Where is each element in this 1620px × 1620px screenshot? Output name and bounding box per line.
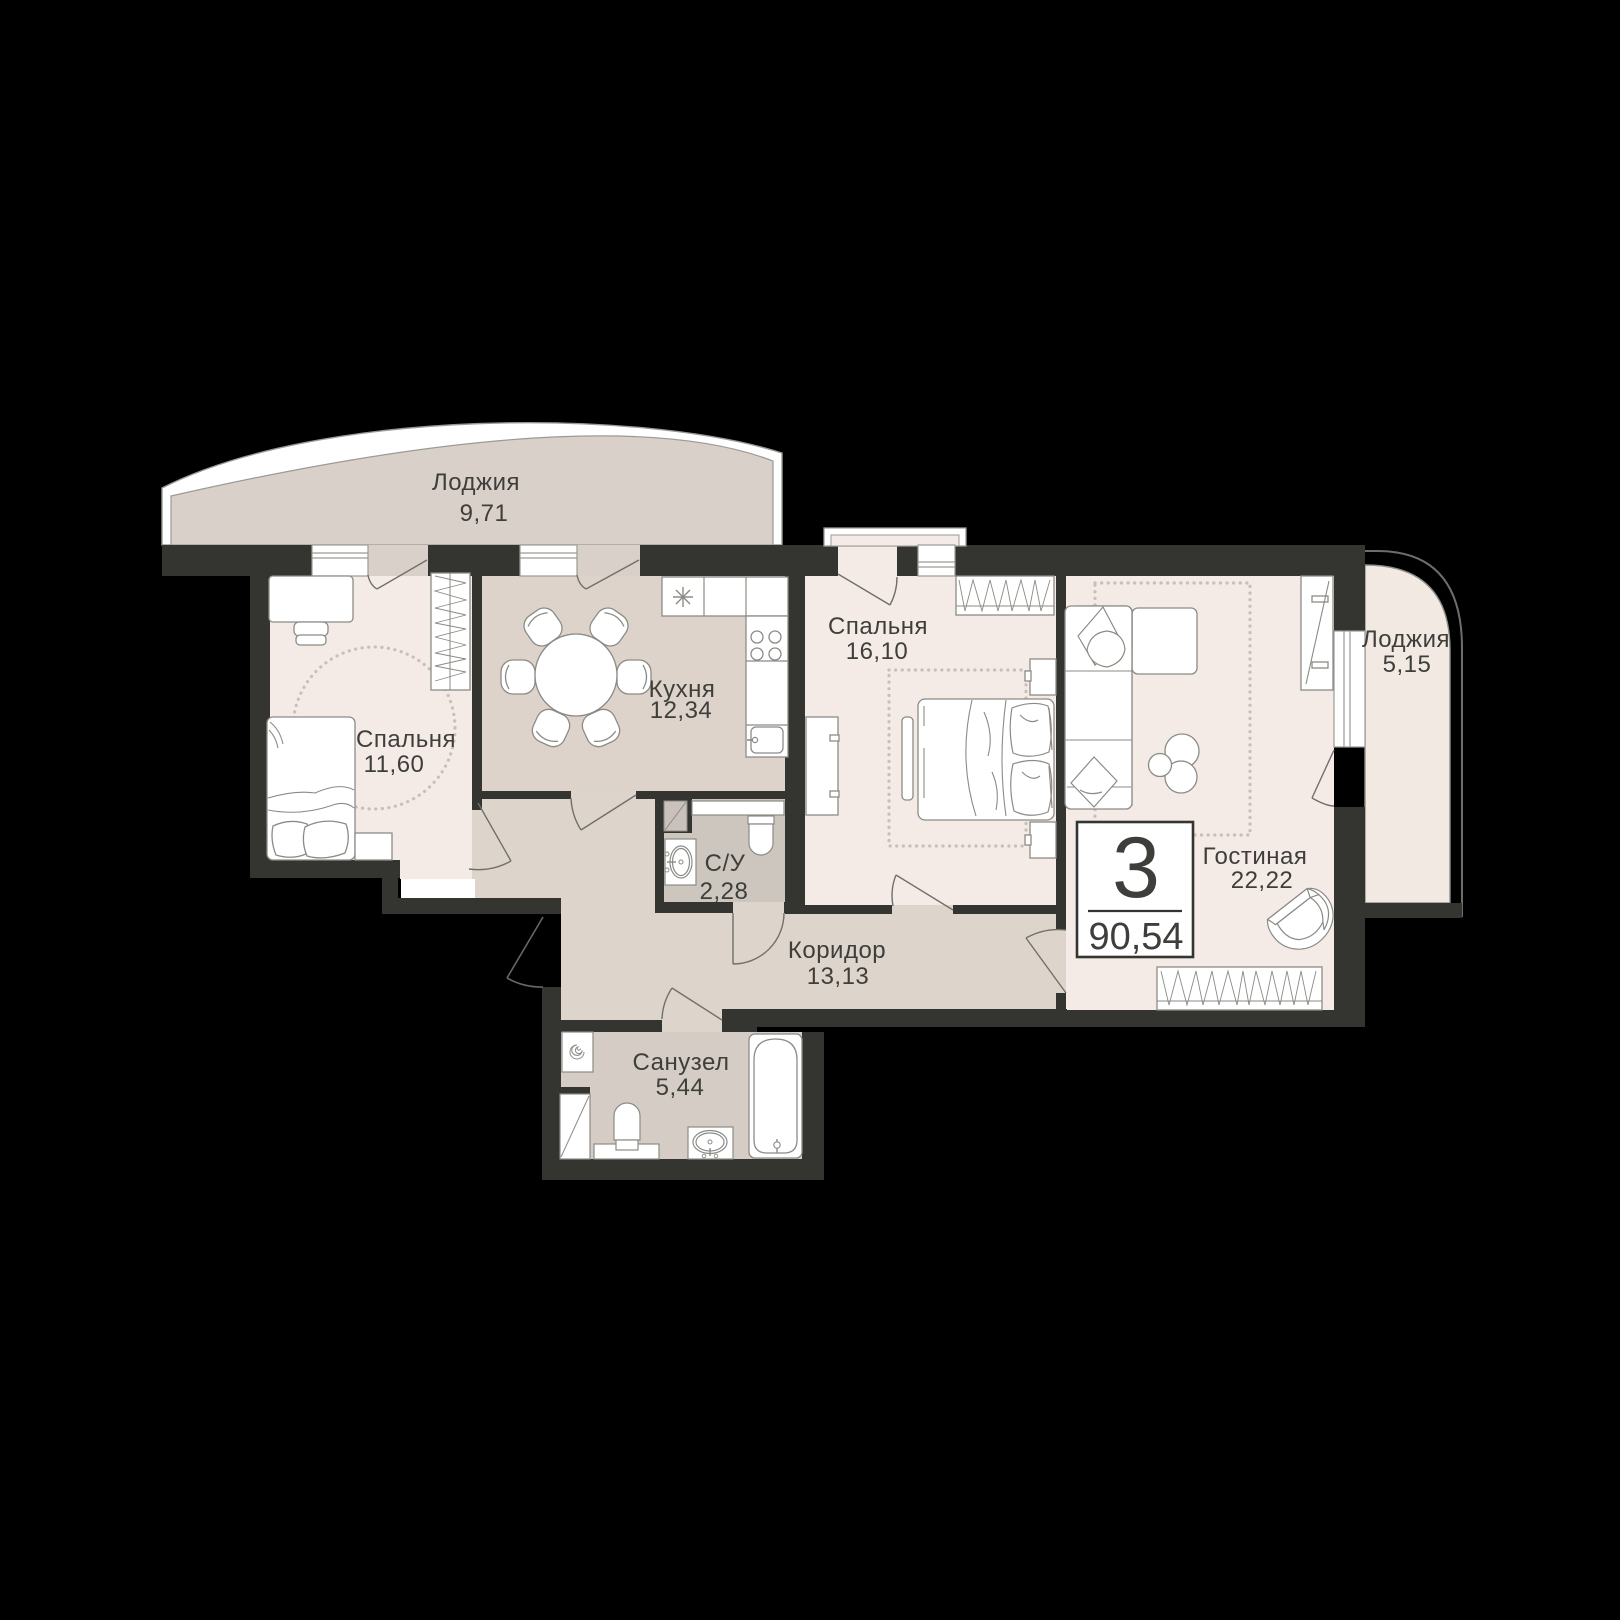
svg-text:Санузел: Санузел — [633, 1049, 730, 1076]
svg-text:Гостиная: Гостиная — [1203, 843, 1308, 870]
svg-text:2,28: 2,28 — [700, 878, 749, 905]
svg-text:С/У: С/У — [705, 850, 746, 877]
svg-text:5,44: 5,44 — [656, 1074, 705, 1101]
svg-text:16,10: 16,10 — [846, 638, 909, 665]
svg-text:Лоджия: Лоджия — [1362, 626, 1450, 653]
svg-text:9,71: 9,71 — [460, 500, 509, 527]
svg-text:Спальня: Спальня — [356, 726, 456, 753]
svg-text:90,54: 90,54 — [1088, 916, 1183, 958]
svg-text:3: 3 — [1112, 820, 1160, 916]
svg-text:13,13: 13,13 — [807, 963, 870, 990]
svg-text:12,34: 12,34 — [650, 697, 713, 724]
svg-text:22,22: 22,22 — [1231, 867, 1294, 894]
svg-text:Коридор: Коридор — [788, 937, 886, 964]
svg-text:Лоджия: Лоджия — [432, 469, 520, 496]
svg-text:11,60: 11,60 — [364, 751, 425, 778]
svg-text:5,15: 5,15 — [1383, 651, 1432, 678]
svg-text:Спальня: Спальня — [828, 613, 928, 640]
